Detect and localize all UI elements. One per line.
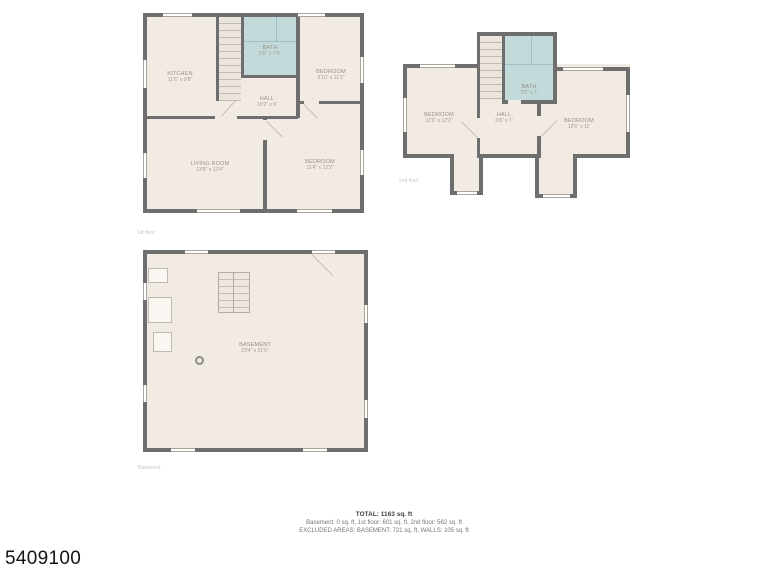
summary-breakdown: Basement: 0 sq. ft, 1st floor: 601 sq. f… xyxy=(0,519,768,527)
window-marker xyxy=(364,400,368,418)
basement-plan: BASEMENT 23'4" x 21'6" Basement xyxy=(143,250,368,452)
wall-segment xyxy=(263,140,267,209)
stair-divider xyxy=(233,272,234,313)
window-marker xyxy=(420,64,455,68)
room-label-bedroom-top: BEDROOM 9'10" x 11'2" xyxy=(316,69,346,81)
room-dims: 5'6" x 7'4" xyxy=(259,51,281,57)
window-marker xyxy=(297,209,332,213)
room-label-bedroom-left: BEDROOM 11'6" x 12'2" xyxy=(424,112,454,124)
door-gap xyxy=(312,250,335,254)
room-label-living: LIVING ROOM 13'8" x 12'4" xyxy=(191,161,230,173)
floor-caption: Basement xyxy=(138,465,161,471)
wall-segment xyxy=(241,75,300,78)
room-dims: 12'6" x 11' xyxy=(564,124,594,130)
room-label-bath: BATH 7'6" x 7' xyxy=(520,84,537,96)
wall-segment xyxy=(577,154,630,158)
window-marker xyxy=(298,13,325,17)
window-marker xyxy=(185,250,208,254)
window-marker xyxy=(171,448,195,452)
floor-caption: 1st floor xyxy=(137,230,155,236)
listing-id: 5409100 xyxy=(5,548,81,570)
room-dims: 10'2" x 6' xyxy=(257,102,277,108)
wall-segment xyxy=(216,13,219,101)
summary-excluded: EXCLUDED AREAS: BASEMENT: 721 sq. ft, WA… xyxy=(0,527,768,535)
column-marker xyxy=(195,356,204,365)
room-dims: 11'4" x 12'2" xyxy=(305,165,335,171)
room-dims: 9'10" x 11'2" xyxy=(316,75,346,81)
staircase xyxy=(218,272,250,313)
window-marker xyxy=(364,305,368,323)
staircase xyxy=(219,17,241,101)
window-marker xyxy=(403,98,407,132)
window-marker xyxy=(143,153,147,178)
room-label-hall: HALL 10'2" x 6' xyxy=(257,96,277,108)
floor-fill xyxy=(535,158,577,198)
room-label-bath: BATH 5'6" x 7'4" xyxy=(259,45,281,57)
bath-fixture-line xyxy=(531,36,532,64)
first-floor-plan: KITCHEN 11'6" x 9'8" BATH 5'6" x 7'4" BE… xyxy=(143,13,364,213)
wall-segment xyxy=(477,32,480,104)
wall-segment xyxy=(360,13,364,213)
window-marker xyxy=(360,57,364,83)
room-dims: 23'4" x 21'6" xyxy=(239,348,271,354)
wall-segment xyxy=(483,154,535,158)
wall-segment xyxy=(477,32,557,36)
room-label-bedroom-bottom: BEDROOM 11'4" x 12'2" xyxy=(305,159,335,171)
window-marker xyxy=(626,95,630,132)
second-floor-plan: BEDROOM 11'6" x 12'2" BATH 7'6" x 7' HAL… xyxy=(403,32,630,198)
wall-segment xyxy=(537,136,541,158)
window-marker xyxy=(543,194,570,198)
window-marker xyxy=(360,150,364,175)
wall-segment xyxy=(479,154,483,195)
room-label-kitchen: KITCHEN 11'6" x 9'8" xyxy=(167,71,193,83)
wall-segment xyxy=(319,101,364,104)
wall-segment xyxy=(364,250,368,452)
wall-segment xyxy=(450,154,454,195)
wall-segment xyxy=(537,104,541,116)
wall-segment xyxy=(263,116,267,120)
area-summary: TOTAL: 1163 sq. ft Basement: 0 sq. ft, 1… xyxy=(0,511,768,535)
summary-total: TOTAL: 1163 sq. ft xyxy=(0,511,768,519)
window-marker xyxy=(303,448,327,452)
bath-fixture-line xyxy=(244,41,296,42)
room-label-hall: HALL 6'8" x 7' xyxy=(495,112,512,124)
room-label-basement: BASEMENT 23'4" x 21'6" xyxy=(239,342,271,354)
bath-fixture-line xyxy=(276,17,277,41)
wall-segment xyxy=(477,104,480,118)
room-dims: 11'6" x 12'2" xyxy=(424,118,454,124)
wall-segment xyxy=(403,154,450,158)
wall-segment xyxy=(535,154,539,198)
utility-fixture xyxy=(153,332,172,352)
wall-segment xyxy=(573,154,577,198)
utility-fixture xyxy=(148,297,172,323)
room-dims: 11'6" x 9'8" xyxy=(167,77,193,83)
floor-plan-page: KITCHEN 11'6" x 9'8" BATH 5'6" x 7'4" BE… xyxy=(0,0,768,576)
utility-fixture xyxy=(148,268,168,283)
room-dims: 13'8" x 12'4" xyxy=(191,167,230,173)
window-marker xyxy=(197,209,240,213)
window-marker xyxy=(143,385,147,402)
wall-segment xyxy=(502,100,508,104)
window-marker xyxy=(143,60,147,88)
window-marker xyxy=(143,283,147,300)
room-dims: 7'6" x 7' xyxy=(520,90,537,96)
room-label-bedroom-right: BEDROOM 12'6" x 11' xyxy=(564,118,594,130)
wall-segment xyxy=(143,13,147,213)
wall-segment xyxy=(143,116,215,119)
wall-segment xyxy=(241,13,244,75)
window-marker xyxy=(457,191,477,195)
room-dims: 6'8" x 7' xyxy=(495,118,512,124)
bath-fixture-line xyxy=(505,64,553,65)
wall-segment xyxy=(502,32,505,100)
window-marker xyxy=(163,13,192,17)
floor-caption: 2nd floor xyxy=(399,178,418,184)
window-marker xyxy=(563,67,603,71)
wall-segment xyxy=(477,138,480,158)
wall-segment xyxy=(143,250,147,452)
wall-segment xyxy=(237,116,298,119)
